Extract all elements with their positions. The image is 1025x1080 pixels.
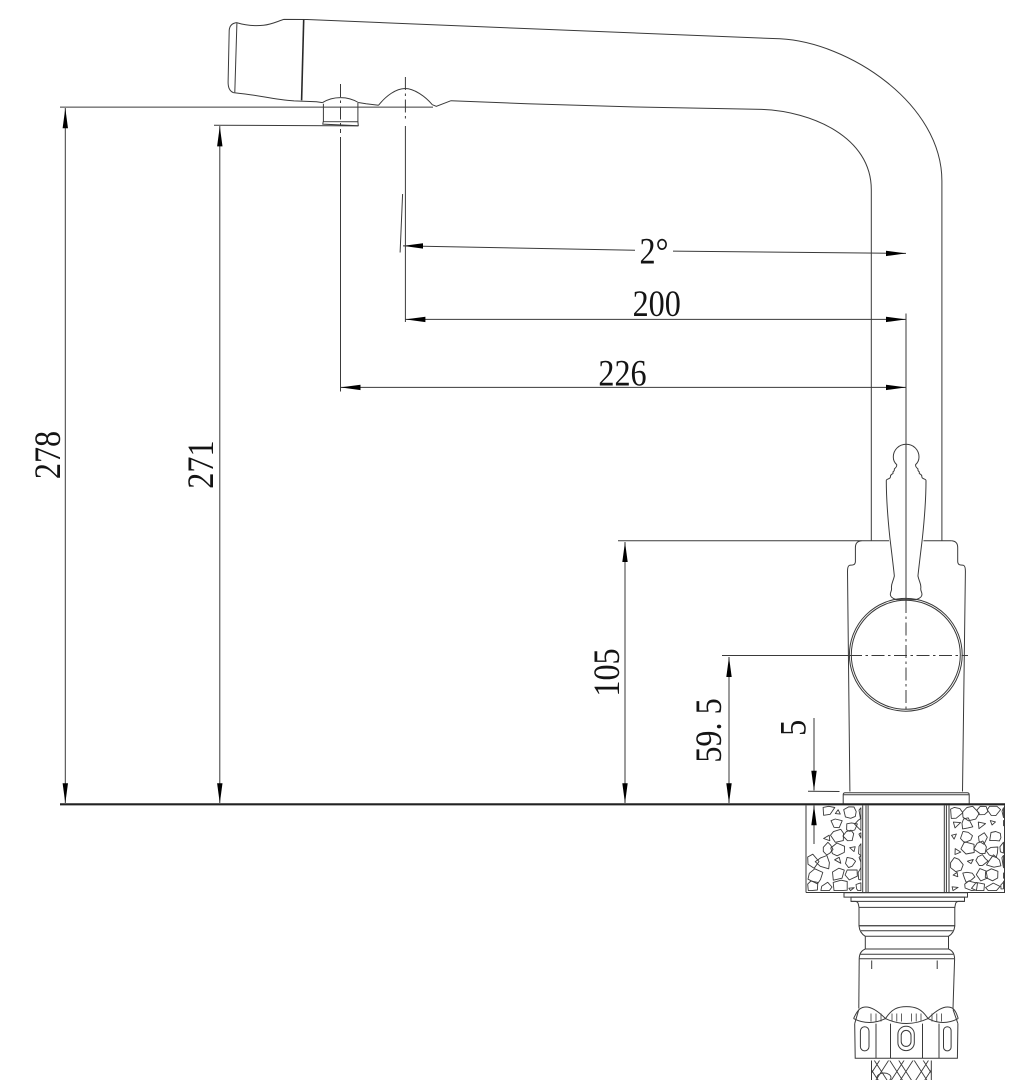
svg-text:59. 5: 59. 5	[689, 698, 730, 762]
svg-text:5: 5	[773, 720, 814, 736]
svg-text:278: 278	[28, 431, 69, 479]
svg-text:2°: 2°	[640, 231, 669, 272]
svg-text:105: 105	[587, 648, 628, 696]
svg-text:226: 226	[598, 353, 646, 394]
svg-text:271: 271	[181, 440, 222, 488]
svg-text:200: 200	[633, 284, 681, 325]
